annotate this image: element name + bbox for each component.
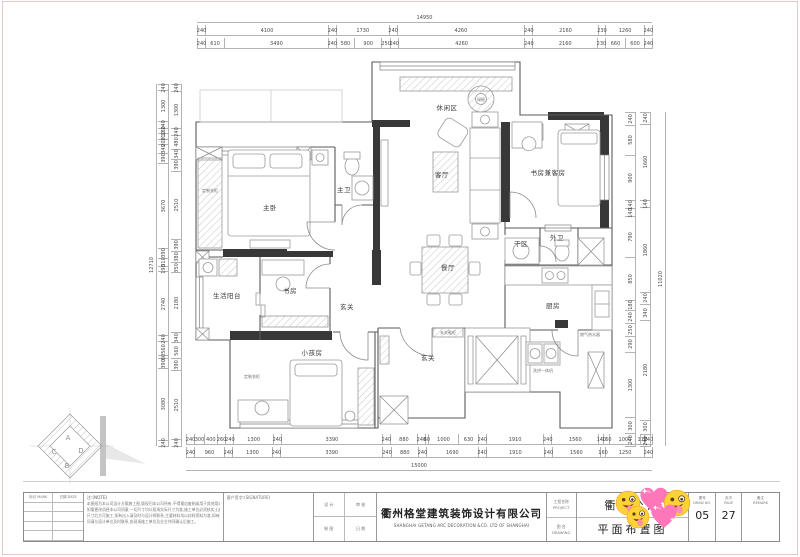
dim-segment: 240 — [158, 441, 169, 447]
dim-segment: 560 — [171, 343, 182, 359]
revision-table: 标记 MARK 日期 DATE — [24, 493, 84, 541]
dim-segment: 1910 — [487, 434, 544, 445]
dim-chain-top-2: 2406103490240580900250240426024021602306… — [197, 38, 653, 49]
dim-total-left: 12710 — [146, 84, 157, 446]
dim-segment: 1250 — [606, 447, 644, 458]
dim-chain-left-inner: 2401300240480340390251039038035021803405… — [171, 84, 182, 447]
room-label: 休闲区 — [437, 103, 458, 112]
checker-label: 审 核 — [345, 493, 376, 517]
dim-segment: 1860 — [640, 208, 651, 293]
dim-segment: 240 — [625, 434, 636, 447]
dim-segment: 240 — [419, 447, 427, 458]
dim-segment: 340 — [171, 333, 182, 343]
dim-segment: 2510 — [171, 172, 182, 241]
dim-segment: 240 — [640, 435, 651, 447]
dim-segment: 1300 — [625, 353, 636, 419]
dim-segment: 240 — [625, 113, 636, 126]
washer — [203, 263, 213, 273]
company-cell: 衢州格堂建筑装饰设计有限公司 SHANGHAI GETANG ARC DECOR… — [377, 493, 546, 541]
dim-segment: 300 — [625, 418, 636, 434]
room-label: 主卧 — [263, 203, 277, 212]
master-wardrobe — [198, 158, 222, 248]
toilet — [345, 157, 359, 175]
marker-letter-c: C — [52, 448, 57, 456]
company-name-en: SHANGHAI GETANG ARC DECORATION &CO. LTD … — [394, 523, 530, 528]
dim-segment: 3490 — [225, 38, 329, 49]
dim-segment: 4260 — [398, 25, 526, 36]
annotation-label: 洗烘一体机 — [533, 367, 553, 373]
dim-segment: 240 — [226, 434, 234, 445]
dim-segment: 3670 — [158, 164, 169, 249]
annotation-label: 绿植 — [477, 96, 485, 102]
dim-segment: 880 — [391, 434, 418, 445]
dim-segment: 240 — [479, 434, 487, 445]
dim-segment: 790 — [625, 217, 636, 257]
basin — [355, 181, 369, 195]
drawing-sheet: 休闲区客厅餐厅书房兼客房主卧主卫书房生活阳台玄关小孩房玄关厨房干区外卫 定制衣柜… — [0, 0, 800, 557]
page-no: 27 — [722, 509, 736, 522]
dim-segment: 240 — [390, 25, 398, 36]
dim-segment: 240 — [383, 447, 391, 458]
room-label: 生活阳台 — [213, 291, 241, 300]
dim-segment: 240 — [187, 447, 195, 458]
dim-segment: 1560 — [552, 434, 599, 445]
annotation-label: 定制衣柜 — [202, 187, 218, 193]
dim-segment: 2160 — [533, 25, 598, 36]
dim-segment: 3390 — [281, 447, 383, 458]
dim-segment: 240 — [329, 25, 337, 36]
note-line: 尺寸后方可施工,如有出入请及时与设计师联系,主要材料均以封样资料为准,如有疑 — [87, 513, 220, 519]
dim-segment: 240 — [544, 434, 552, 445]
dim-segment: 3080 — [158, 369, 169, 440]
dim-segment: 1910 — [487, 447, 545, 458]
dim-segment: 380 — [171, 252, 182, 263]
dim-chain-bottom-1: 2403004002602401300240339024088024060100… — [186, 434, 653, 445]
dim-segment: 240 — [274, 434, 282, 445]
dim-segment: 240 — [525, 38, 533, 49]
note-line: 问请与设计单位及时联系,由现场施工单位及业主共同确认后施工。 — [87, 519, 220, 525]
dim-segment: 230 — [598, 38, 606, 49]
dim-segment: 140 — [640, 201, 651, 208]
dim-segment: 4100 — [206, 25, 329, 36]
dim-segment: 900 — [355, 38, 383, 49]
dim-segment: 610 — [206, 38, 225, 49]
drawing-label-en: DRAWING — [552, 530, 570, 535]
room-label: 主卫 — [337, 185, 351, 194]
company-name-cn: 衢州格堂建筑装饰设计有限公司 — [381, 506, 542, 521]
dim-segment: 300 — [195, 434, 205, 445]
dim-segment: 1300 — [233, 447, 273, 458]
dim-segment: 4260 — [399, 38, 525, 49]
room-label: 书房兼客房 — [531, 168, 566, 177]
dim-segment: 300 — [640, 421, 651, 436]
dim-total-bottom: 15000 — [186, 460, 652, 471]
dim-total-right: 11020 — [655, 112, 666, 446]
dim-segment: 240 — [329, 38, 337, 49]
designer-label: 设 计 — [314, 493, 345, 517]
note-line: 如需更改须经本公司同意,一切尺寸均以现场实际尺寸为准,施工单位必须核实土建 — [87, 507, 220, 513]
room-label: 厨房 — [546, 301, 560, 310]
dim-segment: 390 — [171, 359, 182, 371]
dim-segment: 350 — [171, 263, 182, 273]
dim-segment: 290 — [625, 337, 636, 352]
dim-segment: 580 — [625, 126, 636, 156]
planter — [400, 77, 512, 91]
dim-segment: 240 — [198, 38, 206, 49]
desk — [262, 260, 304, 275]
sofa — [470, 128, 500, 223]
dim-segment: 1560 — [553, 447, 601, 458]
room-label: 干区 — [514, 240, 528, 248]
dim-segment: 1300 — [158, 91, 169, 122]
dim-segment: 2510 — [171, 371, 182, 440]
lounge-chair — [436, 116, 470, 148]
dim-segment: 660 — [606, 38, 626, 49]
project-label-en: PROJECT — [553, 505, 569, 510]
dim-segment: 240 — [640, 113, 651, 125]
dim-segment: 240 — [171, 129, 182, 136]
fig-no: 05 — [695, 509, 709, 522]
dim-segment: 240 — [171, 440, 182, 447]
room-label: 玄关 — [340, 302, 354, 311]
dim-segment: 140 — [625, 209, 636, 217]
room-label: 客厅 — [435, 170, 449, 179]
dim-total-top: 14950 — [197, 12, 652, 23]
tv-cabinet — [381, 140, 388, 206]
dim-segment: 390 — [158, 359, 169, 369]
revision-header-date: 日期 DATE — [53, 493, 82, 503]
fig-no-cell: 图号DRAW NO. 05 — [689, 493, 716, 541]
dim-segment: 630 — [459, 434, 479, 445]
dim-segment: 2740 — [158, 272, 169, 336]
dim-segment: 390 — [171, 160, 182, 172]
marker-letter-b: B — [65, 462, 70, 470]
dim-segment: 340 — [171, 150, 182, 160]
dim-segment: 2180 — [171, 273, 182, 333]
annotation-label: 燃气热水器 — [580, 331, 600, 337]
dim-segment: 1000 — [429, 434, 460, 445]
dim-segment: 900 — [625, 156, 636, 202]
room-label: 小孩房 — [302, 348, 323, 357]
dim-segment: 240 — [645, 25, 653, 36]
dim-segment: 340 — [640, 305, 651, 321]
dim-segment: 240 — [391, 38, 399, 49]
dim-segment: 240 — [640, 293, 651, 305]
dim-segment: 390 — [171, 240, 182, 252]
dim-segment: 1300 — [171, 92, 182, 128]
dim-segment: 2180 — [640, 321, 651, 420]
signature-label: 客户签字:(SIGNATURE) — [227, 495, 270, 500]
dim-segment: 240 — [273, 447, 281, 458]
dim-segment: 240 — [645, 38, 653, 49]
marker-letter-d: D — [78, 447, 83, 455]
dim-segment: 240 — [383, 434, 391, 445]
floor-plan: 休闲区客厅餐厅书房兼客房主卧主卫书房生活阳台玄关小孩房玄关厨房干区外卫 定制衣柜… — [0, 0, 800, 557]
dim-segment: 230 — [599, 25, 607, 36]
dim-segment: 960 — [195, 447, 225, 458]
dim-segment: 240 — [625, 311, 636, 324]
dim-segment: 1300 — [234, 434, 273, 445]
dim-chain-right-outer: 240166014018602403402180300240 — [640, 112, 651, 447]
dim-segment: 480 — [171, 136, 182, 150]
dim-segment: 3390 — [282, 434, 383, 445]
remark-cell: 备注REMARK — [742, 493, 779, 541]
room-label: 餐厅 — [441, 263, 455, 272]
staff-grid: 设 计 审 核 制 图 日 期 — [314, 493, 378, 541]
dim-segment: 250 — [625, 324, 636, 337]
dim-segment: 880 — [392, 447, 419, 458]
room-label: 书房 — [283, 286, 297, 295]
notes-cell: 注:(NOTE) 本图纸为本公司设计方案施工图,版权归本公司所有,不得擅自复制或… — [84, 493, 224, 541]
kids-wardrobe — [358, 368, 374, 425]
dim-segment: 580 — [337, 38, 355, 49]
dim-segment: 1660 — [640, 125, 651, 201]
sparkling-heart-emoji — [649, 502, 679, 530]
dim-segment: 1260 — [606, 25, 644, 36]
dim-segment: 240 — [645, 447, 653, 458]
zany-face-emoji — [626, 505, 650, 529]
dim-segment: 240 — [479, 447, 487, 458]
label-column: 工程名称 PROJECT 图 名 DRAWING — [547, 493, 577, 541]
annotation-label: 定制衣柜 — [244, 373, 260, 379]
page-no-cell: 页次PAGE 27 — [716, 493, 742, 541]
dim-segment: 240 — [545, 447, 553, 458]
dim-segment: 240 — [171, 85, 182, 92]
drafter-label: 制 图 — [314, 517, 345, 541]
dim-segment: 240 — [198, 25, 206, 36]
dim-chain-left-outer: 2401300240180210200340390367039031019027… — [158, 84, 169, 447]
signature-cell: 客户签字:(SIGNATURE) — [224, 493, 314, 541]
revision-header-mark: 标记 MARK — [24, 493, 53, 503]
elevator-shaft — [465, 328, 530, 392]
dim-segment: 2160 — [533, 38, 598, 49]
dim-segment: 240 — [525, 25, 533, 36]
bookshelf — [262, 316, 328, 327]
dim-segment: 600 — [626, 38, 645, 49]
dim-chain-top-1: 24041002401730240426024021602301260240 — [197, 25, 653, 36]
dim-segment: 1690 — [427, 447, 479, 458]
note-line: 本图纸为本公司设计方案施工图,版权归本公司所有,不得擅自复制或用于其他用途; — [87, 501, 220, 507]
room-label: 外卫 — [550, 233, 564, 242]
date-label: 日 期 — [345, 517, 376, 541]
elevation-marker: A C D B — [30, 408, 146, 484]
dim-segment: 850 — [625, 258, 636, 301]
dim-segment: 390 — [158, 154, 169, 164]
room-label: 玄关 — [421, 353, 435, 362]
dim-chain-right-inner: 2405809001401407908501802402502901300300… — [625, 112, 636, 447]
dim-segment: 1730 — [337, 25, 389, 36]
dim-segment: 240 — [225, 447, 233, 458]
dim-chain-bottom-2: 2409602401300240339024088024016902401910… — [186, 447, 653, 458]
dim-segment: 180 — [625, 301, 636, 311]
marker-letter-a: A — [66, 434, 71, 442]
annotation-label: 玄关鞋柜 — [440, 329, 456, 335]
